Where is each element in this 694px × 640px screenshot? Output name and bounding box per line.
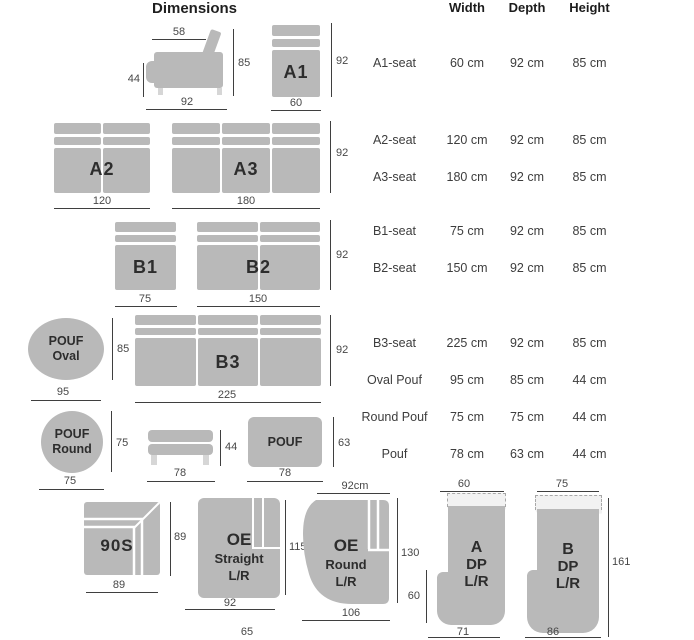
row-height: 44 cm xyxy=(557,373,622,388)
table-header-spacer xyxy=(352,0,437,15)
pouf-label: POUF xyxy=(248,417,322,467)
module-segment xyxy=(103,137,150,145)
dim-label-adp-notch: 60 xyxy=(404,590,420,602)
table-row: B3-seat225 cm92 cm85 cm xyxy=(352,336,627,351)
table-row: Round Pouf75 cm75 cm44 cm xyxy=(352,410,627,425)
row-width: 180 cm xyxy=(437,170,497,185)
bdp-line1: B xyxy=(537,541,599,558)
adp-line3: L/R xyxy=(448,573,505,590)
dim-line xyxy=(54,208,150,209)
row-depth: 92 cm xyxy=(497,336,557,351)
row-height: 85 cm xyxy=(557,224,622,239)
dim-label-round-width: 75 xyxy=(64,475,76,487)
table-header-width: Width xyxy=(437,0,497,15)
module-segment xyxy=(54,137,101,145)
module-a1-label: A1 xyxy=(272,50,320,95)
row-width: 75 cm xyxy=(437,410,497,425)
table-row: B2-seat150 cm92 cm85 cm xyxy=(352,261,627,276)
dim-label-a2-width: 120 xyxy=(93,195,111,207)
row-height: 44 cm xyxy=(557,447,622,462)
dim-line xyxy=(111,411,112,472)
dim-line xyxy=(170,502,171,576)
dim-label-oe-round-depth: 130 xyxy=(401,547,419,559)
row-height: 85 cm xyxy=(557,133,622,148)
module-adp-label: A DP L/R xyxy=(448,539,505,590)
module-90s-label: 90S xyxy=(84,537,150,555)
row-width: 78 cm xyxy=(437,447,497,462)
dim-line xyxy=(525,637,601,638)
module-segment xyxy=(172,137,220,145)
module-b3-label: B3 xyxy=(135,338,321,386)
dim-line xyxy=(330,121,331,193)
module-segment xyxy=(260,328,321,335)
dim-label-bdp-top: 75 xyxy=(556,478,568,490)
module-segment xyxy=(54,123,101,134)
dim-label-90s-depth: 89 xyxy=(174,531,186,543)
module-b1-label: B1 xyxy=(115,245,176,290)
row-depth: 75 cm xyxy=(497,410,557,425)
module-b2-label: B2 xyxy=(197,245,320,290)
row-width: 150 cm xyxy=(437,261,497,276)
dim-label-b1-width: 75 xyxy=(139,293,151,305)
module-segment xyxy=(198,315,259,325)
module-oe-round-label: OE Round L/R xyxy=(302,536,390,590)
row-label: A1-seat xyxy=(352,56,437,71)
dim-label-b3-depth: 92 xyxy=(336,344,348,356)
bdp-line2: DP xyxy=(537,558,599,575)
dimensions-sheet: Dimensions Width Depth Height A1-seat60 … xyxy=(0,0,694,640)
dim-line xyxy=(426,570,427,623)
sofa-side-body xyxy=(154,52,223,88)
dim-label-a3-width: 180 xyxy=(237,195,255,207)
module-segment xyxy=(260,222,321,232)
dim-line xyxy=(608,498,609,637)
module-segment xyxy=(222,137,270,145)
dim-line xyxy=(146,109,227,110)
sofa-side-leg xyxy=(158,88,163,95)
dim-line xyxy=(397,498,398,603)
dim-line xyxy=(537,491,599,492)
row-height: 85 cm xyxy=(557,56,622,71)
table-row: B1-seat75 cm92 cm85 cm xyxy=(352,224,627,239)
oe-round-line3: L/R xyxy=(302,573,390,590)
module-segment xyxy=(197,222,258,232)
dim-line xyxy=(197,306,320,307)
row-height: 85 cm xyxy=(557,336,622,351)
row-label: Pouf xyxy=(352,447,437,462)
pouf-round-line2: Round xyxy=(52,442,92,457)
dim-line xyxy=(247,481,323,482)
dim-label-adp-top: 60 xyxy=(458,478,470,490)
dim-line xyxy=(331,23,332,97)
pouf-oval-line2: Oval xyxy=(52,349,79,364)
row-height: 85 cm xyxy=(557,261,622,276)
dim-line xyxy=(317,493,390,494)
row-label: B2-seat xyxy=(352,261,437,276)
module-segment xyxy=(272,123,320,134)
dim-label-pouf-width: 78 xyxy=(279,467,291,479)
row-depth: 92 cm xyxy=(497,170,557,185)
dim-label-seat-height: 44 xyxy=(124,73,140,85)
table-row: A1-seat60 cm92 cm85 cm xyxy=(352,56,627,71)
sofa-side-leg xyxy=(217,88,222,95)
dim-label-90s-width: 89 xyxy=(113,579,125,591)
dim-line xyxy=(285,500,286,595)
dim-line xyxy=(333,417,334,467)
dim-label-oe-straight-width: 92 xyxy=(224,597,236,609)
row-width: 225 cm xyxy=(437,336,497,351)
dim-line xyxy=(220,430,221,466)
module-segment xyxy=(172,123,220,134)
dim-line xyxy=(330,315,331,386)
row-depth: 92 cm xyxy=(497,261,557,276)
module-segment xyxy=(115,222,176,232)
row-label: Oval Pouf xyxy=(352,373,437,388)
module-bdp-label: B DP L/R xyxy=(537,541,599,592)
oe-round-line2: Round xyxy=(302,556,390,573)
row-height: 44 cm xyxy=(557,410,622,425)
module-segment xyxy=(103,123,150,134)
dim-label-pouf-side-height: 44 xyxy=(225,441,237,453)
dim-label-pouf-depth: 63 xyxy=(338,437,350,449)
pouf-side-cushion-bottom xyxy=(148,444,213,455)
module-a3-label: A3 xyxy=(172,146,320,193)
dim-line xyxy=(147,481,215,482)
module-a2-label: A2 xyxy=(54,146,150,193)
row-depth: 85 cm xyxy=(497,373,557,388)
dim-label-oval-depth: 85 xyxy=(117,343,129,355)
row-label: A3-seat xyxy=(352,170,437,185)
adp-line2: DP xyxy=(448,556,505,573)
row-depth: 92 cm xyxy=(497,56,557,71)
dim-line xyxy=(152,39,206,40)
row-depth: 92 cm xyxy=(497,133,557,148)
row-width: 60 cm xyxy=(437,56,497,71)
table-row: A2-seat120 cm92 cm85 cm xyxy=(352,133,627,148)
table-row: Pouf78 cm63 cm44 cm xyxy=(352,447,627,462)
pouf-oval-line1: POUF xyxy=(49,334,84,349)
module-segment xyxy=(197,235,258,242)
oe-straight-line1: OE xyxy=(198,530,280,550)
module-segment xyxy=(135,328,196,335)
bdp-line3: L/R xyxy=(537,575,599,592)
table-header-depth: Depth xyxy=(497,0,557,15)
module-segment xyxy=(272,39,320,47)
row-depth: 63 cm xyxy=(497,447,557,462)
table-row: A3-seat180 cm92 cm85 cm xyxy=(352,170,627,185)
pouf-side-leg xyxy=(203,455,209,465)
dim-line xyxy=(302,620,390,621)
row-width: 120 cm xyxy=(437,133,497,148)
dim-line xyxy=(86,592,158,593)
module-segment xyxy=(260,235,321,242)
dim-line xyxy=(428,637,500,638)
oe-straight-line3: L/R xyxy=(198,567,280,584)
dim-line xyxy=(31,400,101,401)
dim-label-depth: 92 xyxy=(181,96,193,108)
dim-line xyxy=(440,491,504,492)
dim-line xyxy=(330,220,331,290)
page-title: Dimensions xyxy=(152,0,237,17)
oe-round-line1: OE xyxy=(302,536,390,556)
pouf-side-cushion-top xyxy=(148,430,213,442)
module-segment xyxy=(272,137,320,145)
dim-line xyxy=(185,609,275,610)
table-header-height: Height xyxy=(557,0,622,15)
module-segment xyxy=(272,25,320,36)
module-oe-straight-label: OE Straight L/R xyxy=(198,530,280,584)
dim-label-total-height: 85 xyxy=(238,57,250,69)
row-width: 95 cm xyxy=(437,373,497,388)
row-label: Round Pouf xyxy=(352,410,437,425)
table-row: Oval Pouf95 cm85 cm44 cm xyxy=(352,373,627,388)
row-width: 75 cm xyxy=(437,224,497,239)
dim-label-oe-straight-base: 65 xyxy=(241,626,253,638)
pouf-oval-label: POUF Oval xyxy=(28,318,104,380)
dim-label-a1-depth: 92 xyxy=(336,55,348,67)
module-segment xyxy=(260,315,321,325)
dim-label-a1-width: 60 xyxy=(290,97,302,109)
dim-label-oval-width: 95 xyxy=(57,386,69,398)
module-segment xyxy=(222,123,270,134)
dim-label-oe-round-top: 92cm xyxy=(342,480,369,492)
pouf-round-label: POUF Round xyxy=(41,411,103,473)
dim-label-round-depth: 75 xyxy=(116,437,128,449)
dim-line xyxy=(39,489,104,490)
dim-label-bdp-height: 161 xyxy=(612,556,630,568)
row-label: A2-seat xyxy=(352,133,437,148)
adp-headrest-band xyxy=(447,493,506,507)
dim-line xyxy=(172,208,320,209)
dim-label-oe-round-bottom: 106 xyxy=(342,607,360,619)
dim-label-pouf-side-width: 78 xyxy=(174,467,186,479)
module-segment xyxy=(198,328,259,335)
dim-label-b2-width: 150 xyxy=(249,293,267,305)
bdp-headrest-band xyxy=(535,495,602,510)
dim-label-b3-width: 225 xyxy=(218,389,236,401)
oe-straight-line2: Straight xyxy=(198,550,280,567)
dim-label-a3-depth: 92 xyxy=(336,147,348,159)
dim-line xyxy=(143,63,144,97)
adp-line1: A xyxy=(448,539,505,556)
dim-label-b2-depth: 92 xyxy=(336,249,348,261)
module-segment xyxy=(135,315,196,325)
dim-line xyxy=(115,306,177,307)
dim-line xyxy=(271,110,321,111)
pouf-round-line1: POUF xyxy=(55,427,90,442)
row-depth: 92 cm xyxy=(497,224,557,239)
dim-line xyxy=(135,402,321,403)
dim-line xyxy=(233,29,234,96)
dim-line xyxy=(112,318,113,380)
pouf-label-text: POUF xyxy=(268,435,303,450)
pouf-side-leg xyxy=(151,455,157,465)
row-label: B3-seat xyxy=(352,336,437,351)
row-label: B1-seat xyxy=(352,224,437,239)
row-height: 85 cm xyxy=(557,170,622,185)
dim-label-seat-depth: 58 xyxy=(173,26,185,38)
table-header: Width Depth Height xyxy=(352,0,627,15)
module-segment xyxy=(115,235,176,242)
